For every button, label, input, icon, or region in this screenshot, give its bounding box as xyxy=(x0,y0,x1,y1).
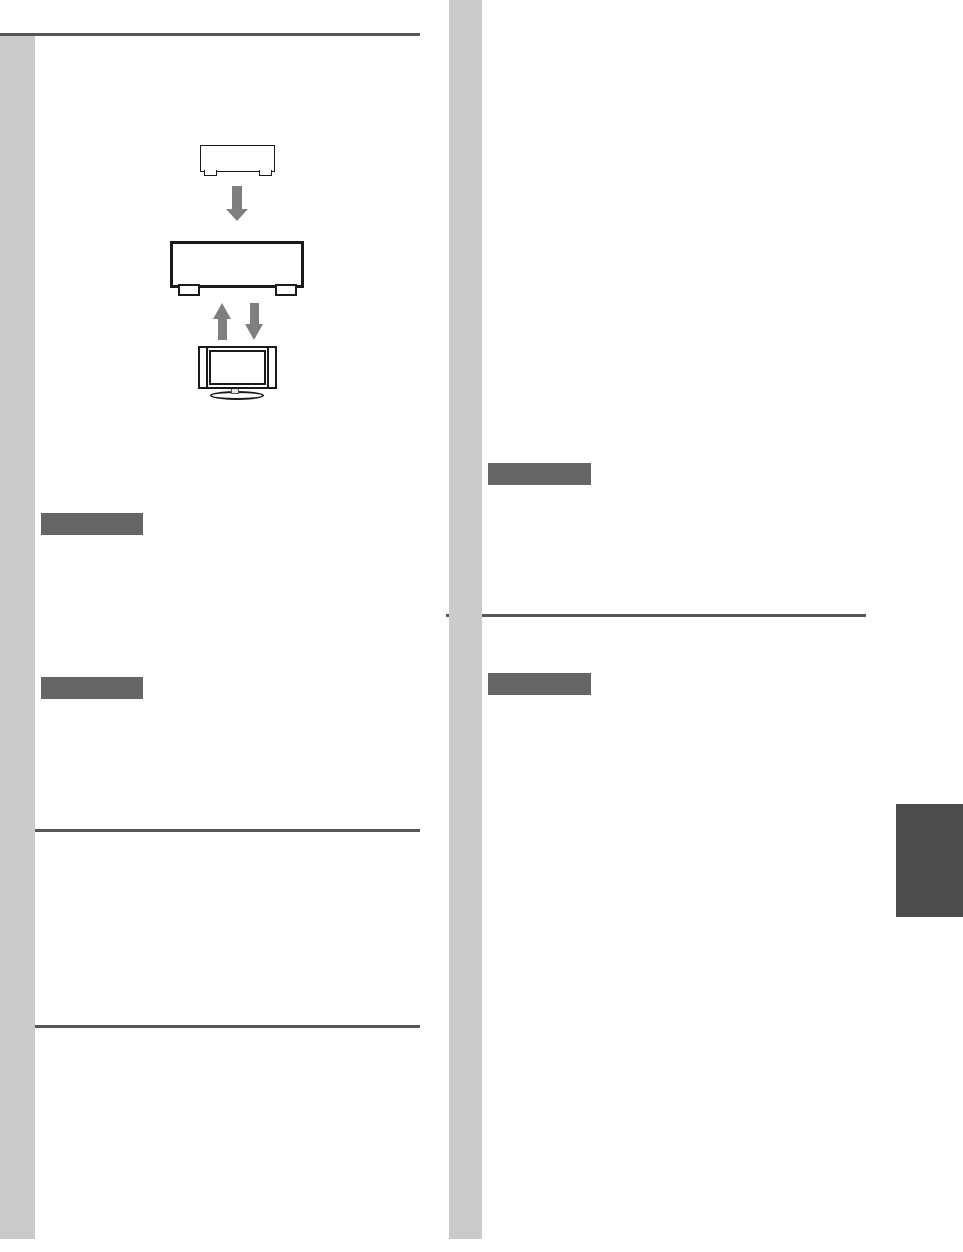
av-receiver-outline-icon xyxy=(170,241,304,288)
center-column-bar xyxy=(449,0,482,1239)
arrow-head xyxy=(245,324,263,340)
arrow-stem xyxy=(250,303,259,324)
tv-screen xyxy=(209,350,266,385)
arrow-stem xyxy=(218,319,227,340)
tv-body xyxy=(198,346,277,389)
top-section-rule xyxy=(0,33,420,36)
right-section-rule xyxy=(446,614,866,617)
chapter-tab xyxy=(896,804,963,917)
arrow-head xyxy=(213,303,231,319)
left-heading-block-2 xyxy=(41,677,143,699)
down-arrow-icon xyxy=(245,303,263,340)
left-section-rule-1 xyxy=(0,829,420,832)
left-heading-block-1 xyxy=(41,513,143,535)
up-arrow-icon xyxy=(213,303,231,340)
left-section-rule-2 xyxy=(0,1025,420,1028)
right-heading-block-1 xyxy=(488,463,591,485)
arrow-head xyxy=(226,209,248,221)
source-component-outline-icon xyxy=(200,145,275,172)
arrow-stem xyxy=(232,186,242,209)
manual-page xyxy=(0,0,963,1252)
left-margin-bar xyxy=(0,36,35,1239)
tv-outline-icon xyxy=(198,346,277,403)
down-arrow-icon xyxy=(226,186,248,221)
right-heading-block-2 xyxy=(488,673,591,695)
